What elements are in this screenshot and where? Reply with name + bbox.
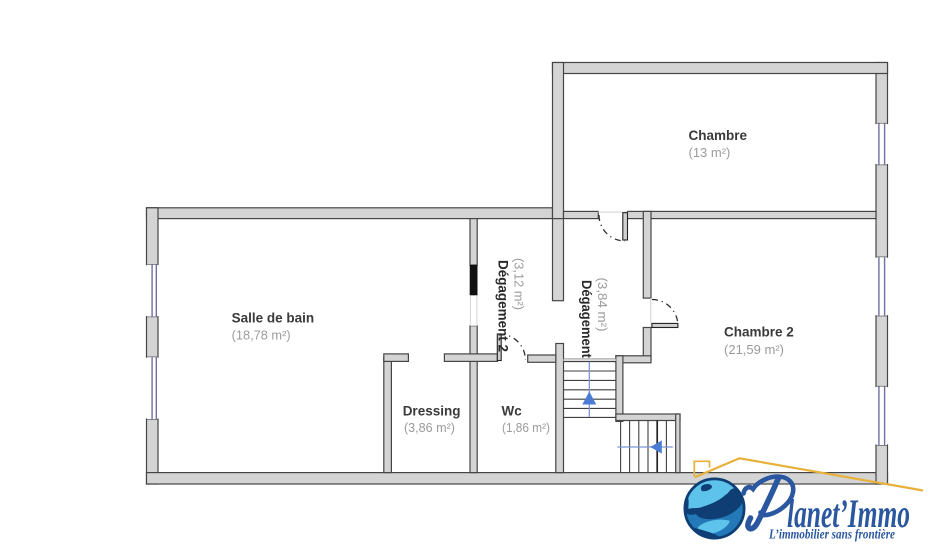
svg-text:(1,86 m²): (1,86 m²) — [502, 420, 550, 435]
svg-text:(3,84 m²): (3,84 m²) — [595, 278, 610, 332]
svg-text:(3,86 m²): (3,86 m²) — [404, 420, 455, 435]
svg-text:Chambre 2: Chambre 2 — [724, 324, 794, 339]
svg-text:(21,59 m²): (21,59 m²) — [724, 342, 784, 357]
svg-text:Chambre: Chambre — [689, 128, 748, 143]
svg-text:(13 m²): (13 m²) — [689, 145, 731, 160]
svg-text:Wc: Wc — [502, 404, 523, 419]
svg-text:Dressing: Dressing — [403, 404, 461, 419]
svg-text:Dégagement 2: Dégagement 2 — [495, 260, 510, 352]
svg-text:Salle de bain: Salle de bain — [232, 311, 315, 326]
svg-text:(18,78 m²): (18,78 m²) — [232, 328, 291, 343]
svg-text:L’immobilier sans frontière: L’immobilier sans frontière — [768, 527, 895, 542]
svg-text:Dégagement: Dégagement — [579, 280, 594, 358]
svg-text:(3,12 m²): (3,12 m²) — [511, 258, 526, 310]
